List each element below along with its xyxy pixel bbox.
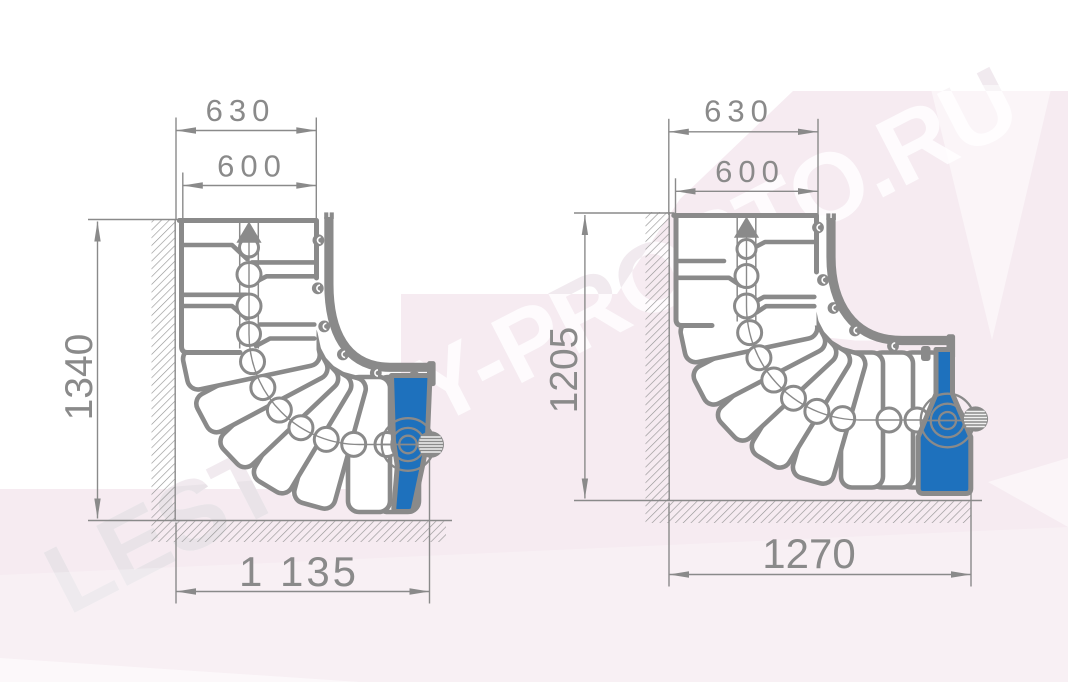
svg-text:600: 600: [715, 154, 785, 189]
svg-text:630: 630: [206, 93, 276, 128]
svg-text:630: 630: [704, 94, 774, 129]
svg-text:1270: 1270: [762, 530, 855, 577]
svg-text:600: 600: [217, 149, 287, 184]
svg-text:1340: 1340: [58, 334, 101, 421]
svg-text:1 135: 1 135: [239, 548, 359, 595]
svg-text:1205: 1205: [543, 327, 586, 414]
